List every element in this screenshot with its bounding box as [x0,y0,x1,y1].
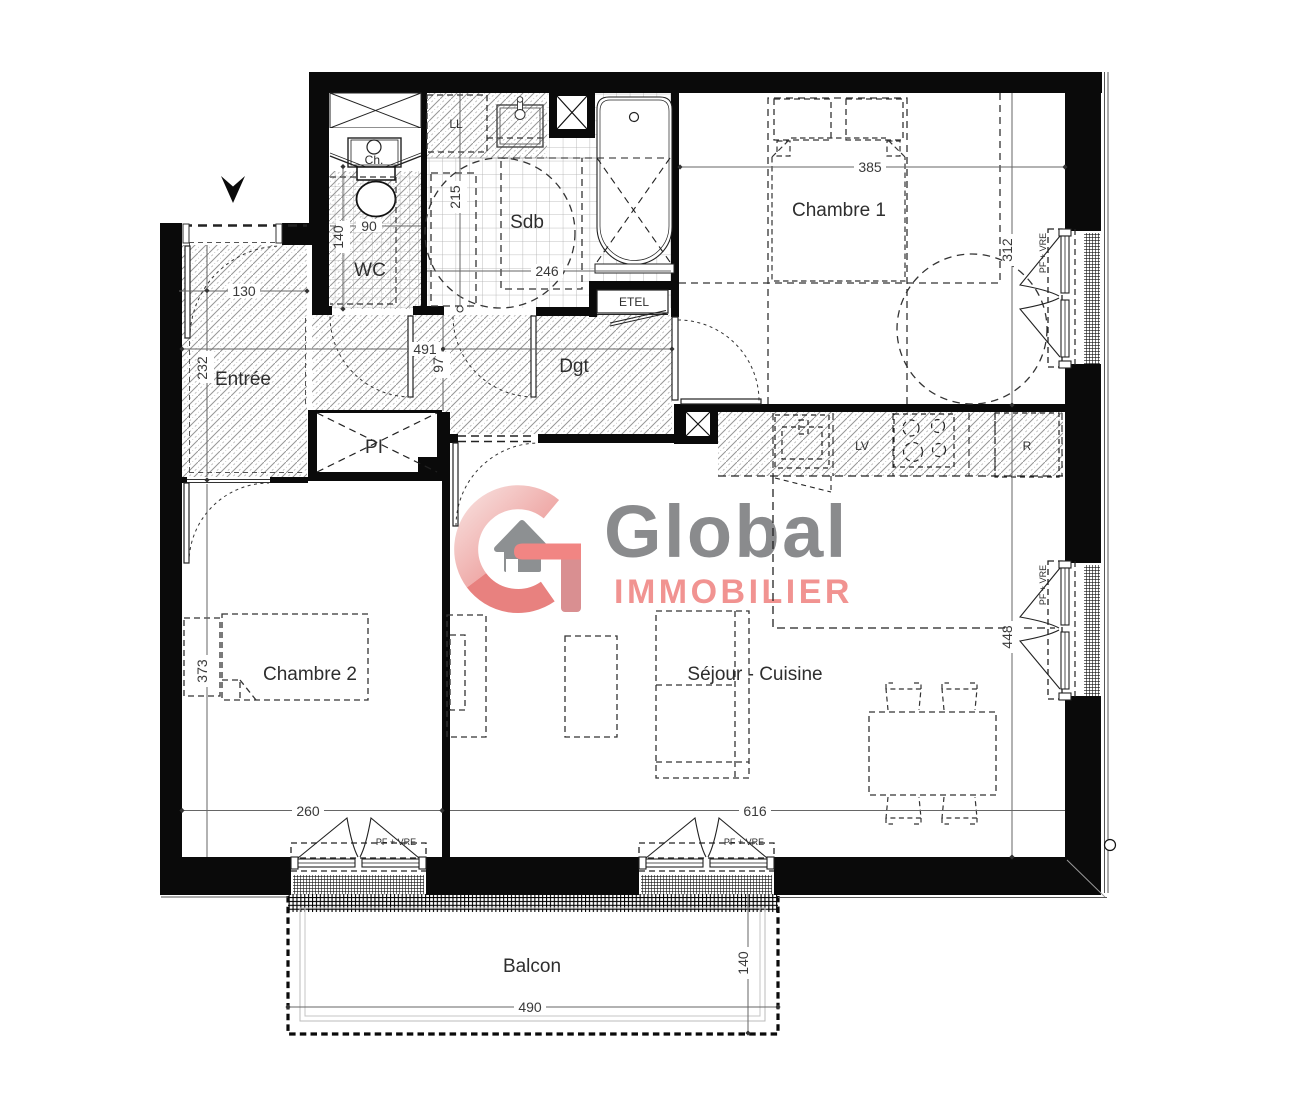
svg-text:LV: LV [855,439,869,453]
svg-text:Dgt: Dgt [559,356,589,377]
svg-text:PF + VRE: PF + VRE [376,837,416,847]
svg-text:616: 616 [743,803,767,819]
svg-text:260: 260 [296,803,320,819]
svg-text:IMMOBILIER: IMMOBILIER [614,573,853,611]
svg-text:Global: Global [604,490,849,573]
svg-text:Chambre 2: Chambre 2 [263,664,357,685]
svg-text:ETEL: ETEL [619,295,649,309]
svg-text:490: 490 [518,999,542,1015]
svg-text:Entrée: Entrée [215,369,271,390]
svg-text:140: 140 [735,951,751,975]
svg-text:246: 246 [535,263,559,279]
svg-text:215: 215 [447,185,463,209]
svg-text:PF + VRE: PF + VRE [1038,233,1048,273]
svg-text:130: 130 [232,283,256,299]
svg-text:Séjour - Cuisine: Séjour - Cuisine [687,664,822,685]
svg-text:97: 97 [430,357,446,373]
svg-text:373: 373 [194,659,210,683]
svg-text:232: 232 [194,356,210,380]
svg-text:PF + VRE: PF + VRE [724,837,764,847]
svg-text:R: R [1023,439,1032,453]
svg-text:448: 448 [999,625,1015,649]
svg-text:90: 90 [361,218,377,234]
svg-text:PF + VRE: PF + VRE [1038,565,1048,605]
svg-text:Chambre 1: Chambre 1 [792,200,886,221]
svg-text:140: 140 [330,225,346,249]
svg-text:PI: PI [365,437,383,458]
svg-text:LL: LL [449,117,463,131]
svg-text:Balcon: Balcon [503,956,561,977]
svg-text:WC: WC [354,260,386,281]
svg-text:Sdb: Sdb [510,212,544,233]
svg-text:385: 385 [858,159,882,175]
svg-text:312: 312 [999,238,1015,262]
svg-text:Ch.: Ch. [365,153,384,167]
svg-text:491: 491 [413,341,437,357]
